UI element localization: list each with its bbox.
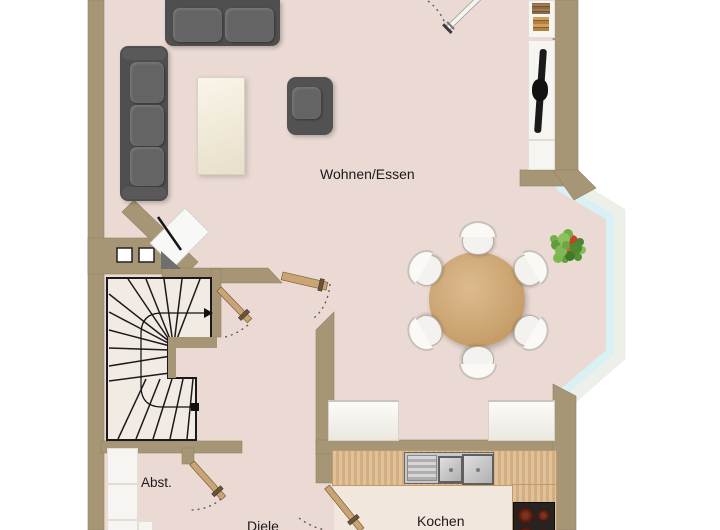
sofa-armrest [122,48,166,60]
wall-storage-stub [182,448,194,464]
storage-cabinet-lower [107,520,138,530]
burner [537,509,550,522]
tv-stand [532,79,548,101]
dining-chair [462,228,494,255]
sink-basin-small [438,456,463,483]
sofa-cushion [130,62,164,103]
dining-chair [462,346,494,373]
wall-right [553,0,578,178]
armchair [287,77,333,135]
sink-drainer [407,455,437,481]
storage-item [138,521,153,530]
burner [517,507,534,524]
sofa-cushion [130,147,164,186]
armchair-cushion [292,87,321,119]
shelf-unit [528,0,555,38]
stair-start-marker [191,403,199,411]
room-label-hallway: Diele [247,518,279,530]
room-label-kitchen: Kochen [417,513,464,529]
sofa-two-seater [165,0,280,46]
sink-drain [476,468,480,472]
sofa-cushion [173,8,222,42]
sofa-cushion [130,105,164,146]
coffee-table [197,77,245,175]
sideboard-right [488,400,555,441]
sideboard-left [328,400,399,441]
sofa-cushion [225,8,274,42]
shaft-square [139,248,154,262]
potted-plant [562,241,570,249]
floor-plan: Wohnen/Essen Kochen Diele Abst. [0,0,720,530]
tv-lowboard [528,40,555,170]
shelf-divider [529,139,554,141]
book-stack [533,17,549,31]
shaft-square [117,248,132,262]
kitchen-sink [404,452,494,484]
wall-stair-side [211,269,221,337]
sink-basin-large [462,454,494,485]
sink-drain [449,468,453,472]
sofa-three-seater [120,46,168,201]
room-label-living-dining: Wohnen/Essen [320,166,415,182]
storage-cabinet [107,448,138,520]
room-label-storage: Abst. [141,475,172,490]
sofa-armrest [122,187,166,199]
stove-cooktop [513,502,555,530]
dining-table [429,252,525,347]
shelf-divider [108,483,137,485]
book-stack [532,3,550,14]
